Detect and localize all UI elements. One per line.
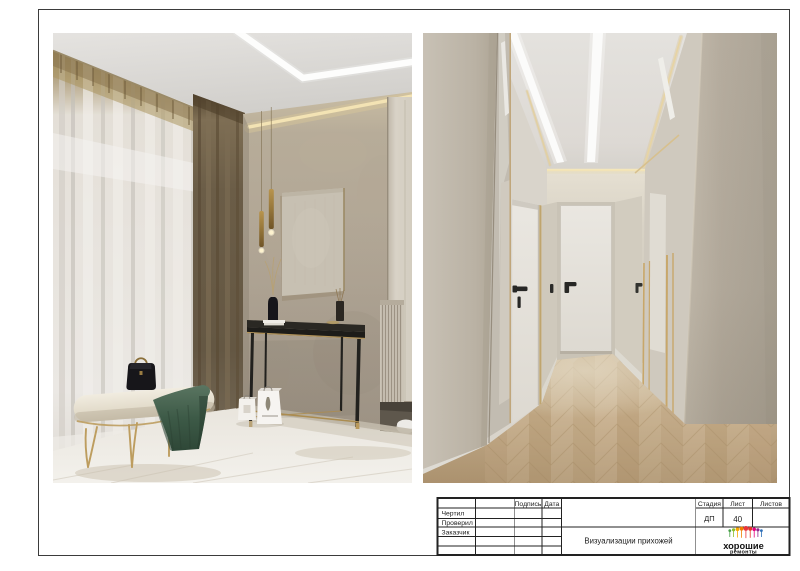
svg-text:Стадия: Стадия (698, 501, 721, 508)
svg-text:Проверил: Проверил (442, 520, 473, 527)
svg-text:Лист: Лист (730, 501, 745, 508)
svg-text:Дата: Дата (544, 501, 559, 508)
svg-text:ремонты: ремонты (730, 550, 757, 556)
svg-text:40: 40 (733, 515, 742, 524)
svg-text:Чертил: Чертил (442, 511, 465, 518)
svg-text:Листов: Листов (760, 501, 782, 508)
svg-text:Заказчик: Заказчик (442, 530, 470, 537)
svg-text:ДП: ДП (704, 514, 714, 523)
svg-text:Визуализации прихожей: Визуализации прихожей (584, 536, 672, 545)
svg-text:Подпись: Подпись (515, 501, 542, 508)
